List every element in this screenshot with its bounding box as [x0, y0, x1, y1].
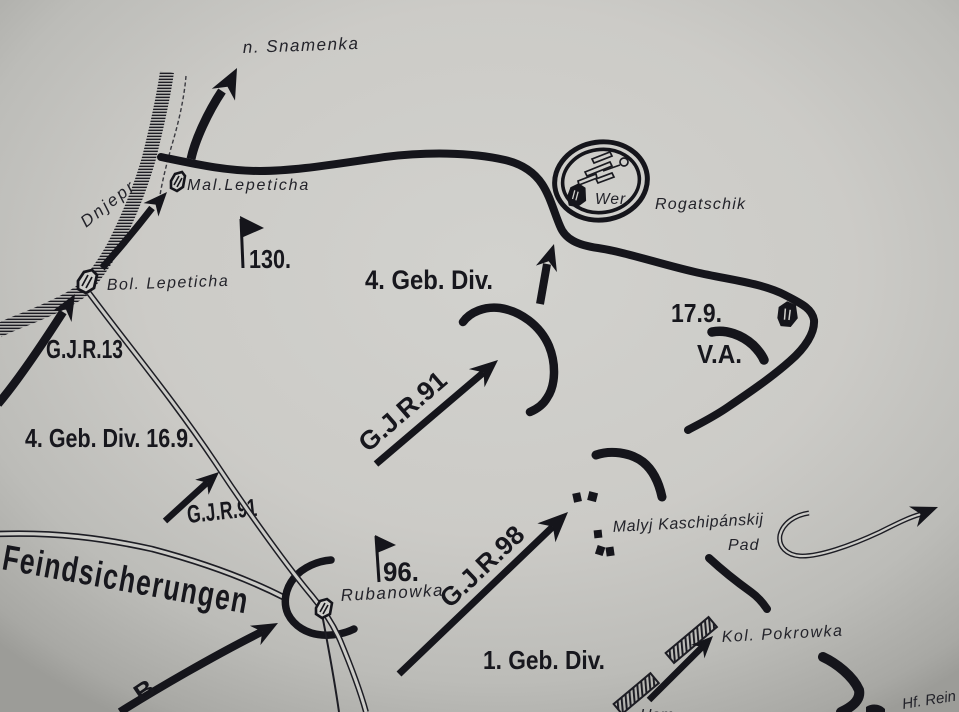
svg-text:4. Geb. Div. 16.9.: 4. Geb. Div. 16.9.: [25, 423, 194, 453]
svg-text:96.: 96.: [383, 557, 419, 587]
svg-text:4. Geb. Div.: 4. Geb. Div.: [365, 265, 493, 295]
svg-text:Ham: Ham: [640, 707, 674, 712]
svg-text:17.9.: 17.9.: [671, 298, 722, 328]
svg-text:130.: 130.: [249, 244, 291, 274]
svg-text:Rogatschik: Rogatschik: [655, 196, 746, 213]
svg-text:1. Geb. Div.: 1. Geb. Div.: [483, 645, 605, 675]
svg-text:Pad: Pad: [728, 537, 760, 554]
svg-text:Mal.Lepeticha: Mal.Lepeticha: [187, 177, 310, 194]
svg-text:Wer.: Wer.: [595, 191, 631, 208]
svg-text:V.A.: V.A.: [697, 339, 742, 369]
svg-text:G.J.R.13: G.J.R.13: [46, 334, 123, 364]
svg-text:n. Snamenka: n. Snamenka: [242, 34, 359, 57]
